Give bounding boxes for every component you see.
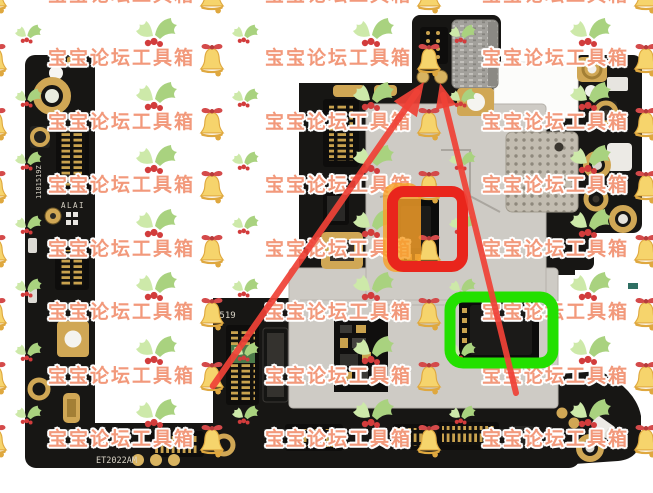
screw-hole xyxy=(585,85,597,97)
motherboard-photo: ET2022AM 9519 ALAI 1181519Z xyxy=(0,0,653,493)
green-box-chip xyxy=(470,305,532,355)
red-box-chip xyxy=(401,206,431,248)
silkscreen-mid-code: 9519 xyxy=(214,311,236,321)
silkscreen-left-code: ALAI xyxy=(61,201,85,210)
silkscreen-left-vertical-code: 1181519Z xyxy=(35,165,43,199)
silkscreen-model-code: ET2022AM xyxy=(96,456,137,466)
bottom-right-section xyxy=(545,371,641,466)
camera-connector xyxy=(420,27,448,64)
shield-hole xyxy=(555,143,564,152)
test-point-right xyxy=(435,71,448,84)
test-point-left xyxy=(417,71,429,83)
screenshot-root: ET2022AM 9519 ALAI 1181519Z 宝宝论坛工具箱 宝宝论坛… xyxy=(0,0,653,493)
mid-left-connectors xyxy=(226,325,288,405)
right-strip-lower xyxy=(556,210,594,270)
